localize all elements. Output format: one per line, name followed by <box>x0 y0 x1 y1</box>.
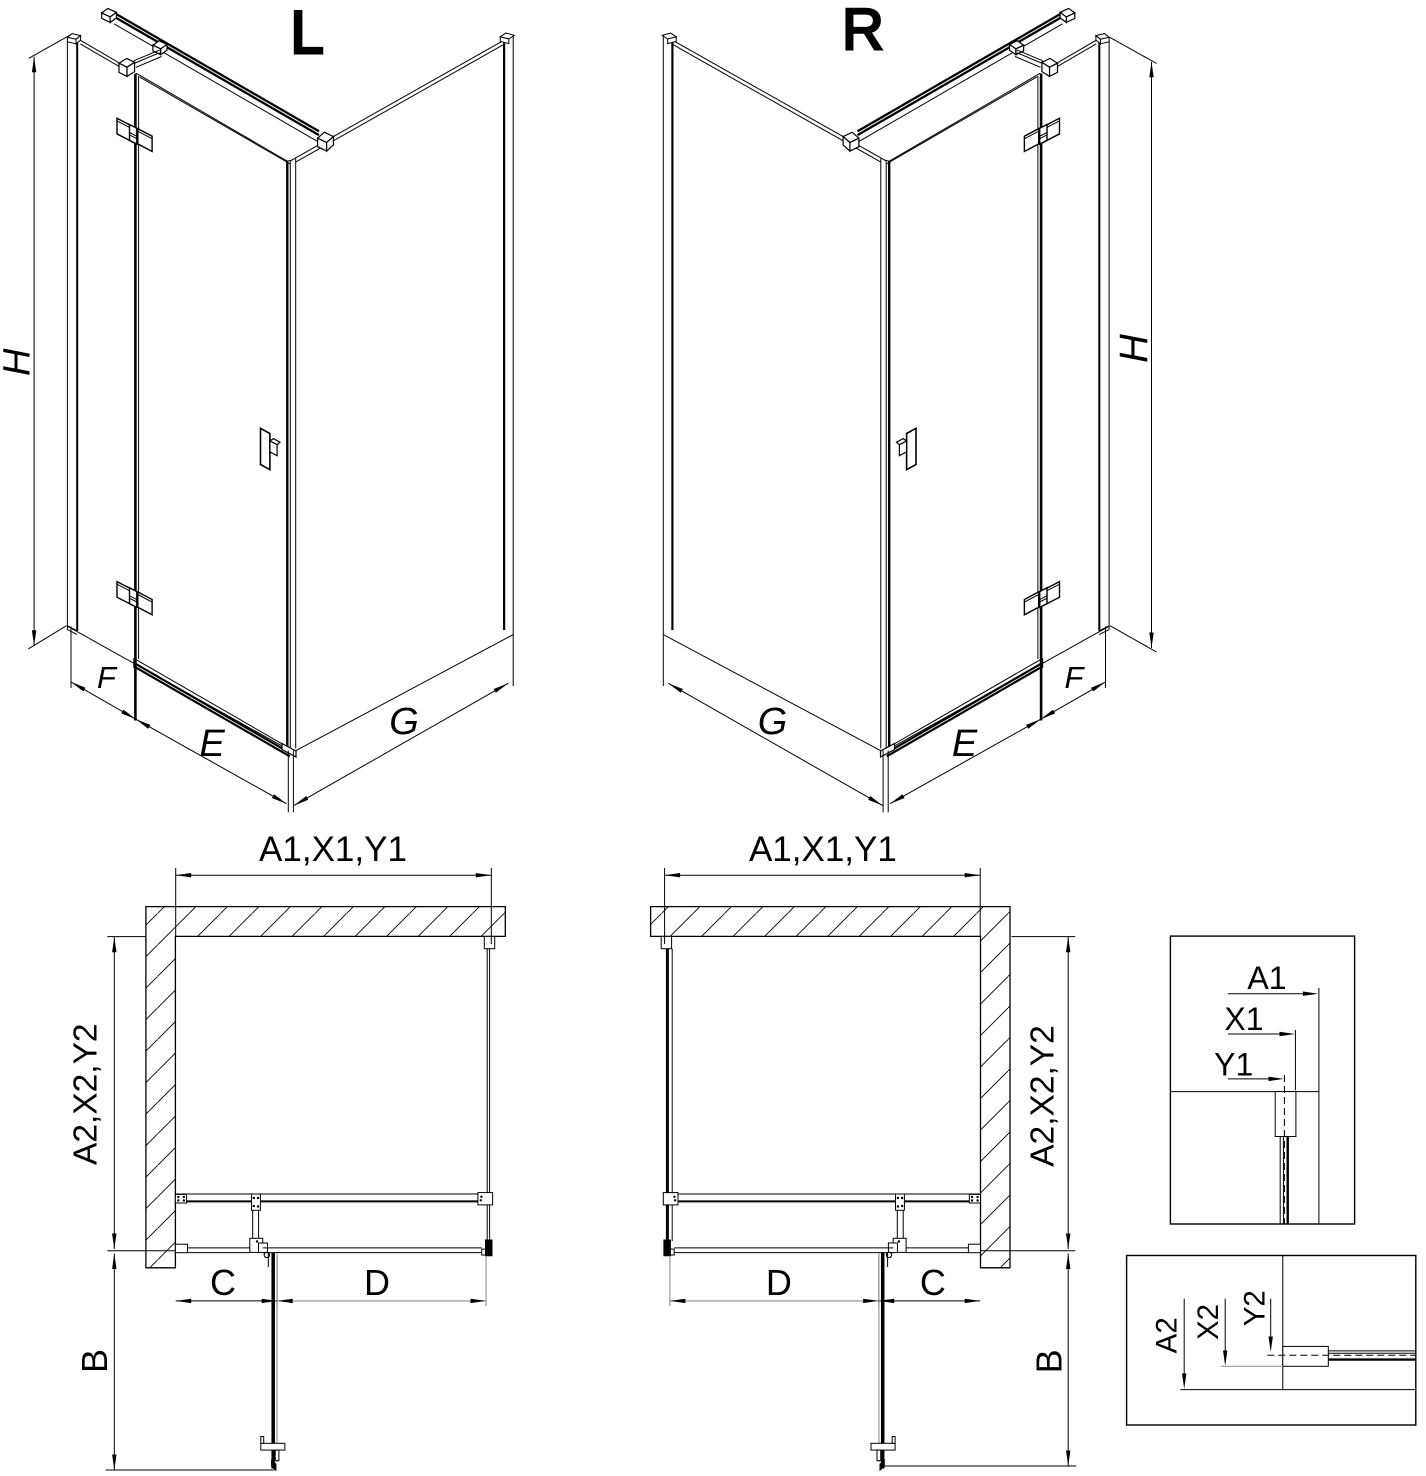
svg-text:E: E <box>952 723 978 765</box>
svg-text:L: L <box>290 0 323 66</box>
svg-text:H: H <box>0 348 39 376</box>
svg-text:A2,X2,Y2: A2,X2,Y2 <box>1025 1025 1062 1167</box>
svg-text:Y2: Y2 <box>1239 1290 1272 1326</box>
svg-text:G: G <box>758 701 788 743</box>
svg-text:R: R <box>842 0 884 62</box>
svg-text:B: B <box>74 1349 115 1373</box>
svg-text:D: D <box>364 1262 390 1303</box>
svg-text:E: E <box>199 723 225 765</box>
svg-text:F: F <box>97 660 118 695</box>
svg-text:H: H <box>1112 334 1156 363</box>
svg-text:D: D <box>766 1262 792 1303</box>
svg-text:A2: A2 <box>1151 1317 1184 1353</box>
svg-text:C: C <box>210 1262 236 1303</box>
svg-text:A2,X2,Y2: A2,X2,Y2 <box>68 1023 105 1165</box>
svg-text:A1,X1,Y1: A1,X1,Y1 <box>259 830 407 869</box>
svg-text:A1: A1 <box>1247 960 1286 996</box>
svg-text:X1: X1 <box>1224 1001 1263 1037</box>
svg-text:C: C <box>920 1262 946 1303</box>
svg-text:Y1: Y1 <box>1214 1047 1253 1083</box>
svg-text:F: F <box>1065 660 1086 695</box>
svg-text:G: G <box>389 701 419 743</box>
svg-text:X2: X2 <box>1192 1304 1225 1340</box>
svg-text:B: B <box>1028 1349 1069 1373</box>
svg-text:A1,X1,Y1: A1,X1,Y1 <box>749 830 897 869</box>
